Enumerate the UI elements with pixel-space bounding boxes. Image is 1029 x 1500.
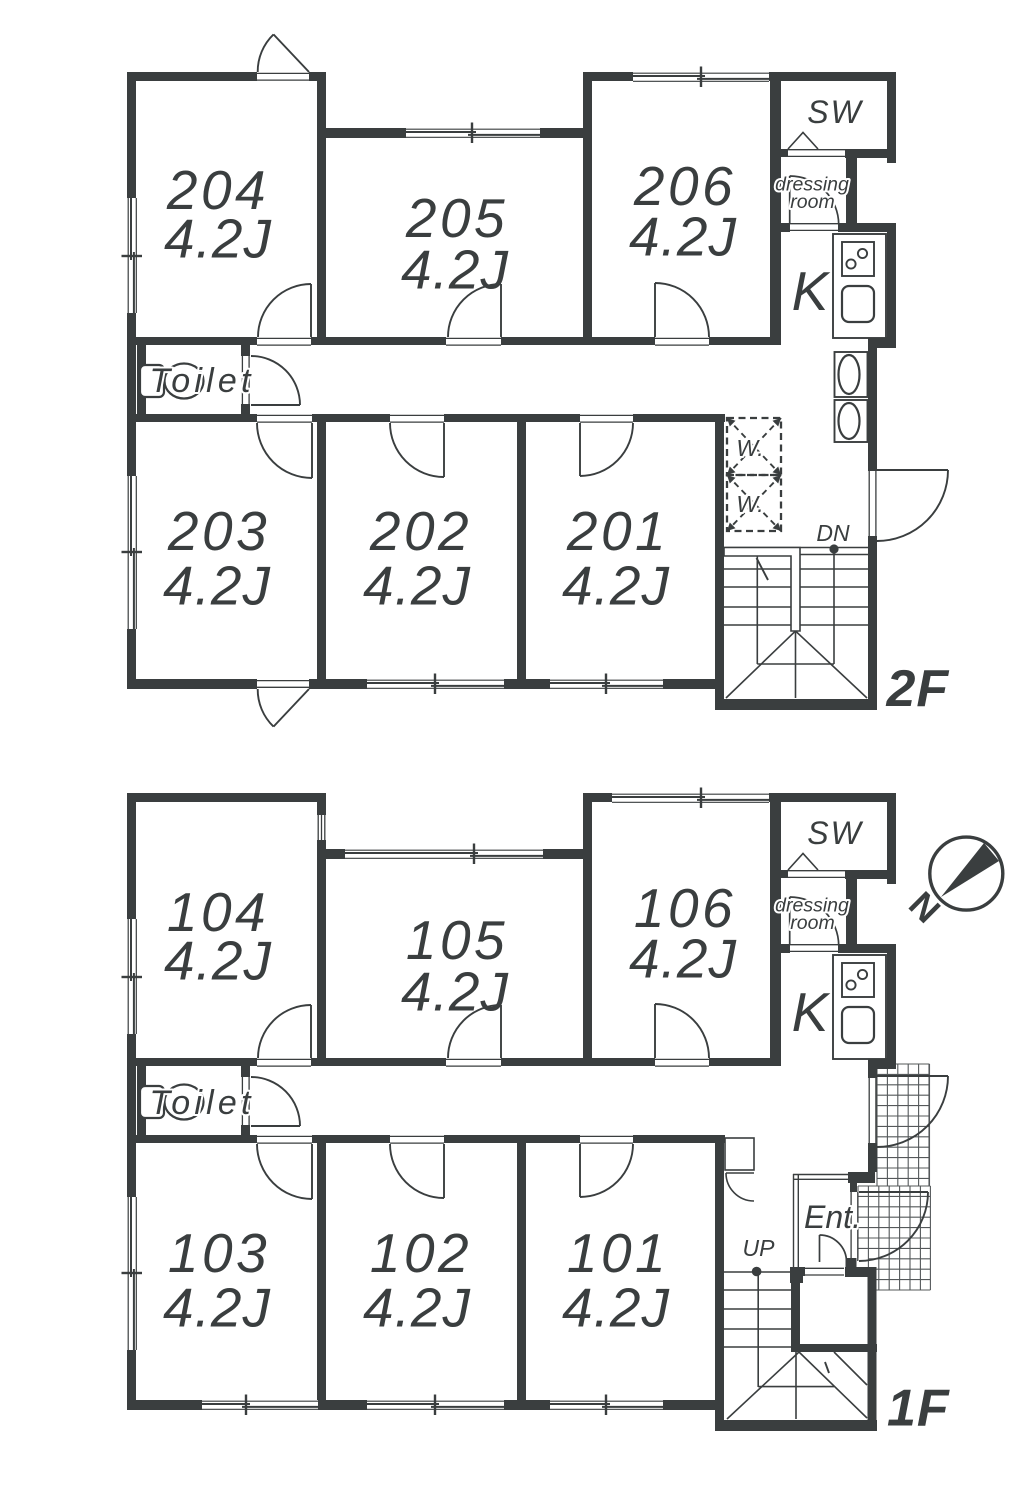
svg-text:UP: UP	[743, 1235, 776, 1261]
svg-text:W.: W.	[736, 435, 763, 461]
svg-text:Ent.: Ent.	[804, 1199, 861, 1235]
svg-text:DN: DN	[816, 520, 850, 546]
svg-text:1F: 1F	[887, 1380, 950, 1438]
svg-text:203: 203	[167, 500, 270, 562]
svg-text:4.2J: 4.2J	[562, 555, 670, 617]
svg-text:103: 103	[168, 1222, 270, 1284]
svg-text:4.2J: 4.2J	[401, 961, 509, 1023]
svg-text:room: room	[790, 912, 834, 934]
svg-text:SW: SW	[807, 815, 863, 851]
svg-text:W.: W.	[736, 491, 763, 517]
svg-text:4.2J: 4.2J	[562, 1277, 670, 1339]
svg-text:4.2J: 4.2J	[163, 1277, 271, 1339]
svg-text:102: 102	[370, 1222, 472, 1284]
svg-text:SW: SW	[807, 94, 863, 130]
svg-text:4.2J: 4.2J	[363, 1277, 471, 1339]
svg-text:2F: 2F	[886, 660, 950, 718]
svg-text:202: 202	[369, 500, 472, 562]
svg-text:101: 101	[567, 1222, 669, 1284]
svg-text:room: room	[790, 191, 834, 213]
svg-text:K: K	[792, 260, 831, 322]
svg-text:4.2J: 4.2J	[164, 930, 272, 992]
svg-text:4.2J: 4.2J	[163, 555, 271, 617]
svg-text:4.2J: 4.2J	[629, 928, 737, 990]
svg-text:K: K	[792, 981, 831, 1043]
svg-text:4.2J: 4.2J	[401, 239, 509, 301]
svg-text:4.2J: 4.2J	[629, 206, 737, 268]
svg-text:Toilet: Toilet	[149, 1084, 254, 1122]
svg-text:4.2J: 4.2J	[164, 208, 272, 270]
svg-text:201: 201	[566, 500, 669, 562]
svg-text:4.2J: 4.2J	[363, 555, 471, 617]
svg-text:Toilet: Toilet	[149, 362, 254, 400]
